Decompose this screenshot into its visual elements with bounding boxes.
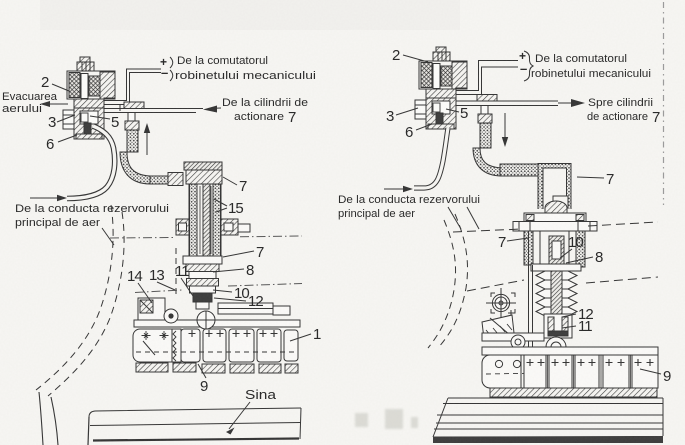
svg-text:7: 7 [498, 234, 506, 251]
svg-text:7: 7 [256, 244, 264, 261]
svg-text:robinetului mecanicului: robinetului mecanicului [531, 68, 651, 80]
svg-text:–: – [161, 65, 168, 80]
svg-text:de actionare: de actionare [587, 111, 648, 123]
svg-text:7: 7 [288, 109, 296, 126]
svg-text:7: 7 [239, 178, 247, 195]
svg-text:principal de aer: principal de aer [15, 217, 100, 229]
svg-text:De la conducta rezervorului: De la conducta rezervorului [338, 194, 480, 206]
svg-text:De la comutatorul: De la comutatorul [535, 53, 627, 65]
svg-text:2: 2 [41, 74, 49, 91]
svg-text:De la conducta rezervorului: De la conducta rezervorului [15, 203, 169, 215]
svg-text:8: 8 [246, 262, 254, 279]
svg-text:12: 12 [248, 293, 263, 310]
svg-text:6: 6 [405, 124, 413, 141]
svg-text:7: 7 [606, 171, 614, 188]
svg-text:De la comutatorul: De la comutatorul [177, 55, 268, 67]
svg-text:3: 3 [48, 114, 56, 131]
svg-text:actionare: actionare [234, 111, 284, 123]
svg-text:13: 13 [149, 267, 164, 284]
svg-text:principal de aer: principal de aer [338, 208, 415, 220]
svg-text:5: 5 [460, 105, 468, 122]
svg-text:De la cilindrii de: De la cilindrii de [222, 97, 308, 109]
svg-text:5: 5 [111, 114, 119, 131]
svg-text:15: 15 [228, 200, 243, 217]
svg-text:–: – [520, 61, 527, 76]
svg-text:aerului: aerului [2, 103, 42, 115]
svg-text:robinetului mecanicului: robinetului mecanicului [175, 70, 316, 82]
svg-text:8: 8 [595, 249, 603, 266]
svg-text:11: 11 [578, 318, 592, 335]
svg-text:1: 1 [313, 326, 321, 343]
svg-text:9: 9 [200, 378, 208, 395]
svg-text:9: 9 [663, 368, 671, 385]
svg-text:Spre cilindrii: Spre cilindrii [588, 97, 653, 109]
svg-text:14: 14 [127, 268, 142, 285]
svg-text:3: 3 [386, 108, 394, 125]
svg-text:11: 11 [175, 263, 189, 280]
svg-text:6: 6 [46, 136, 54, 153]
svg-text:7: 7 [652, 109, 660, 126]
svg-text:2: 2 [392, 47, 400, 64]
svg-text:10: 10 [568, 234, 583, 251]
svg-text:Sina: Sina [245, 388, 276, 402]
